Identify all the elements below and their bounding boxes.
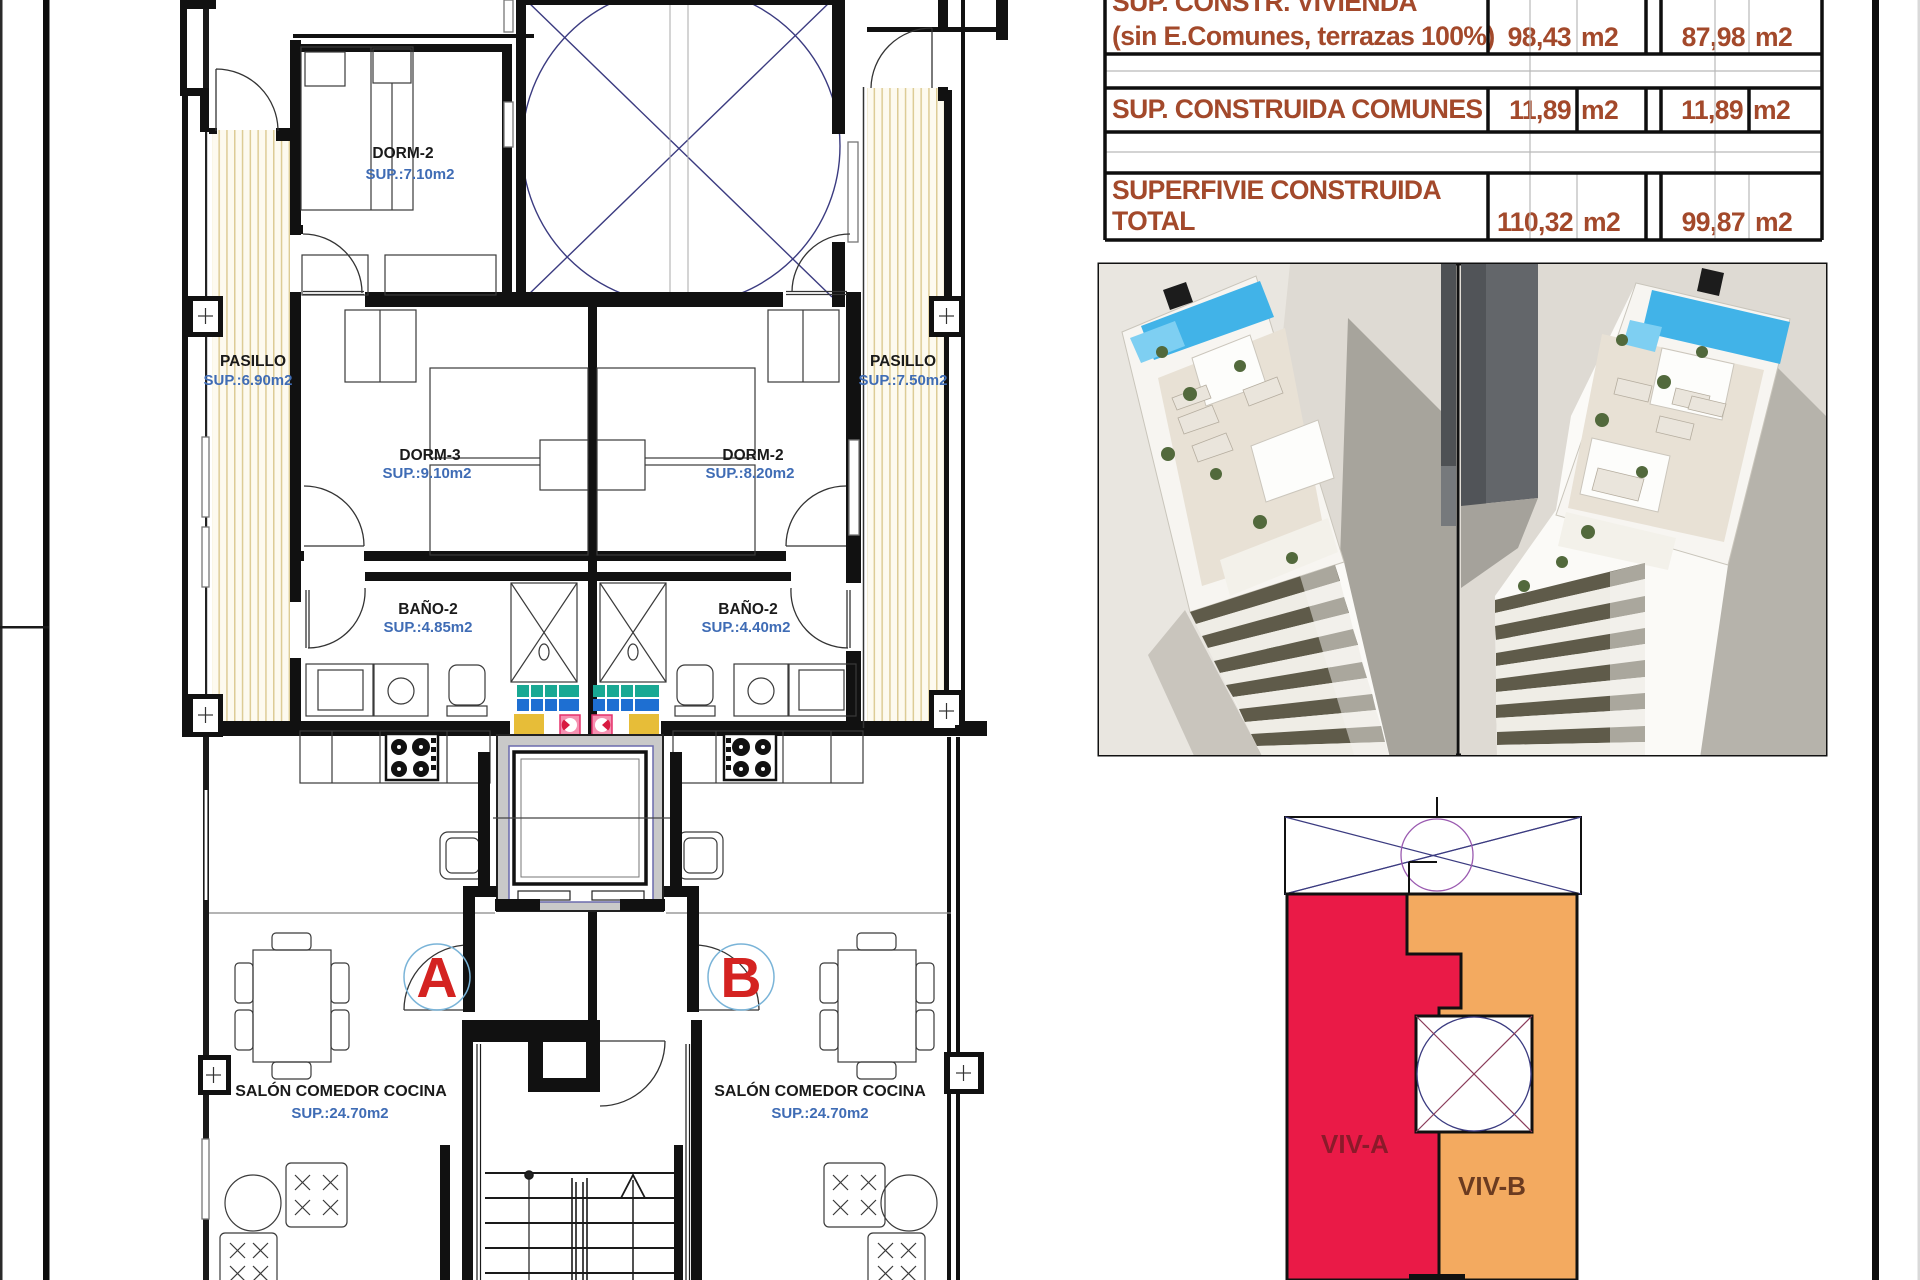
svg-text:SUP.:4.85m2: SUP.:4.85m2 bbox=[384, 619, 473, 636]
svg-text:SUPERFIVIE CONSTRUIDA: SUPERFIVIE CONSTRUIDA bbox=[1112, 175, 1441, 205]
svg-text:SALÓN COMEDOR COCINA: SALÓN COMEDOR COCINA bbox=[714, 1081, 926, 1100]
svg-text:SUP.:24.70m2: SUP.:24.70m2 bbox=[771, 1105, 868, 1122]
svg-text:BAÑO-2: BAÑO-2 bbox=[398, 600, 457, 618]
svg-text:m2: m2 bbox=[1753, 95, 1790, 125]
svg-text:A: A bbox=[416, 946, 457, 1010]
svg-text:BAÑO-2: BAÑO-2 bbox=[718, 600, 777, 618]
svg-text:SUP.:7.50m2: SUP.:7.50m2 bbox=[859, 372, 948, 389]
svg-text:m2: m2 bbox=[1583, 207, 1620, 237]
svg-text:SUP. CONSTRUIDA COMUNES: SUP. CONSTRUIDA COMUNES bbox=[1112, 94, 1483, 124]
svg-text:98,43: 98,43 bbox=[1508, 22, 1571, 52]
svg-text:SUP. CONSTR. VIVIENDA: SUP. CONSTR. VIVIENDA bbox=[1112, 0, 1417, 17]
svg-text:110,32: 110,32 bbox=[1497, 207, 1573, 237]
svg-text:TOTAL: TOTAL bbox=[1112, 206, 1195, 236]
svg-text:VIV-A: VIV-A bbox=[1321, 1129, 1389, 1159]
svg-text:PASILLO: PASILLO bbox=[870, 353, 936, 370]
svg-text:SUP.:6.90m2: SUP.:6.90m2 bbox=[204, 372, 293, 389]
svg-text:11,89: 11,89 bbox=[1509, 95, 1571, 125]
svg-text:m2: m2 bbox=[1755, 22, 1792, 52]
svg-text:m2: m2 bbox=[1581, 95, 1618, 125]
svg-text:SUP.:9.10m2: SUP.:9.10m2 bbox=[383, 465, 472, 482]
svg-text:DORM-2: DORM-2 bbox=[372, 145, 433, 162]
svg-text:m2: m2 bbox=[1581, 22, 1618, 52]
svg-text:99,87: 99,87 bbox=[1682, 207, 1745, 237]
svg-text:DORM-3: DORM-3 bbox=[399, 447, 461, 464]
svg-text:11,89: 11,89 bbox=[1681, 95, 1743, 125]
svg-text:SUP.:7.10m2: SUP.:7.10m2 bbox=[366, 166, 455, 183]
svg-text:VIV-B: VIV-B bbox=[1458, 1171, 1526, 1201]
svg-text:SUP.:4.40m2: SUP.:4.40m2 bbox=[702, 619, 791, 636]
svg-text:SUP.:8.20m2: SUP.:8.20m2 bbox=[706, 465, 795, 482]
svg-text:(sin E.Comunes, terrazas 100%): (sin E.Comunes, terrazas 100%) bbox=[1112, 21, 1495, 51]
svg-text:SALÓN COMEDOR COCINA: SALÓN COMEDOR COCINA bbox=[235, 1081, 447, 1100]
svg-text:B: B bbox=[720, 946, 761, 1010]
svg-text:SUP.:24.70m2: SUP.:24.70m2 bbox=[291, 1105, 388, 1122]
svg-text:87,98: 87,98 bbox=[1682, 22, 1745, 52]
svg-text:DORM-2: DORM-2 bbox=[722, 447, 783, 464]
svg-text:PASILLO: PASILLO bbox=[220, 353, 286, 370]
svg-text:m2: m2 bbox=[1755, 207, 1792, 237]
